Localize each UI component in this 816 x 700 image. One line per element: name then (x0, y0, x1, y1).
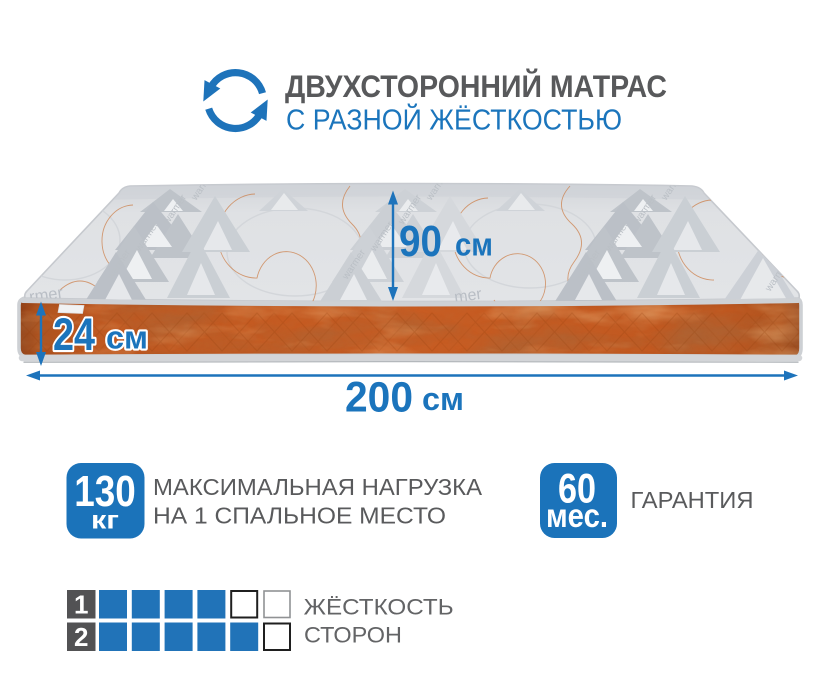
svg-text:24: 24 (53, 309, 95, 360)
svg-text:см: см (422, 381, 464, 417)
svg-text:кг: кг (91, 507, 119, 535)
svg-text:ЖЁСТКОСТЬ: ЖЁСТКОСТЬ (304, 595, 454, 620)
svg-text:90: 90 (399, 217, 442, 266)
svg-text:см: см (455, 227, 493, 263)
svg-text:МАКСИМАЛЬНАЯ НАГРУЗКА: МАКСИМАЛЬНАЯ НАГРУЗКА (153, 474, 482, 500)
svg-text:С РАЗНОЙ ЖЁСТКОСТЬЮ: С РАЗНОЙ ЖЁСТКОСТЬЮ (286, 103, 622, 137)
svg-text:ГАРАНТИЯ: ГАРАНТИЯ (631, 487, 754, 513)
svg-text:ДВУХСТОРОННИЙ МАТРАС: ДВУХСТОРОННИЙ МАТРАС (285, 68, 667, 104)
svg-text:мес.: мес. (546, 497, 608, 534)
svg-text:НА 1 СПАЛЬНОЕ МЕСТО: НА 1 СПАЛЬНОЕ МЕСТО (153, 503, 446, 529)
svg-text:200: 200 (345, 374, 413, 422)
svg-text:1: 1 (74, 590, 88, 620)
svg-text:см: см (106, 320, 148, 356)
svg-text:2: 2 (74, 622, 88, 652)
svg-text:СТОРОН: СТОРОН (304, 623, 402, 648)
